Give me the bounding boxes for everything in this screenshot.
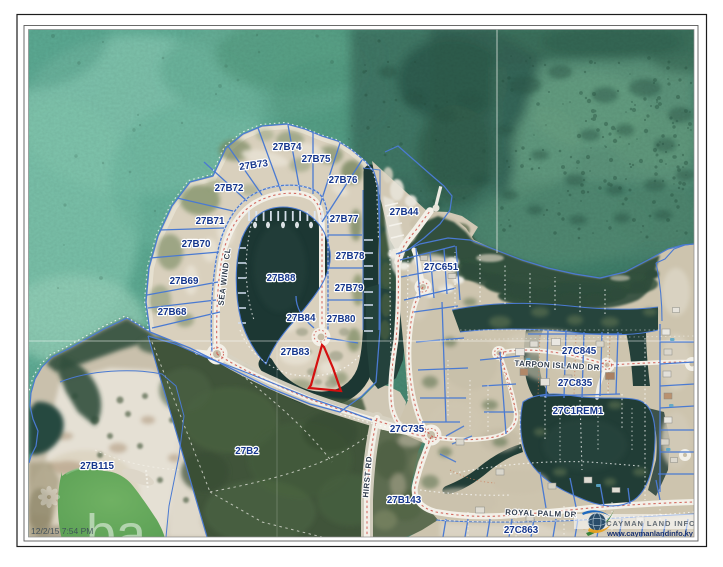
svg-text:27B75: 27B75 (302, 154, 331, 165)
svg-text:27C835: 27C835 (558, 378, 593, 389)
svg-text:27B88: 27B88 (267, 273, 296, 284)
svg-text:27B143: 27B143 (387, 495, 422, 506)
svg-text:12/2/15 7:54 PM: 12/2/15 7:54 PM (31, 526, 93, 536)
svg-text:27B2: 27B2 (235, 446, 259, 457)
svg-text:27B70: 27B70 (182, 239, 211, 250)
svg-text:27B69: 27B69 (170, 276, 199, 287)
svg-text:27B44: 27B44 (390, 207, 419, 218)
svg-text:27C845: 27C845 (562, 346, 597, 357)
svg-text:27B77: 27B77 (330, 214, 359, 225)
svg-text:27B68: 27B68 (158, 307, 187, 318)
svg-text:27B76: 27B76 (329, 175, 358, 186)
svg-text:27B71: 27B71 (196, 216, 225, 227)
svg-text:27C735: 27C735 (390, 424, 425, 435)
svg-text:27C1REM1: 27C1REM1 (553, 406, 604, 417)
svg-text:27B84: 27B84 (287, 313, 316, 324)
svg-text:27B115: 27B115 (80, 461, 114, 472)
svg-text:27B80: 27B80 (327, 314, 356, 325)
svg-text:27B79: 27B79 (335, 283, 364, 294)
svg-text:27B83: 27B83 (281, 347, 310, 358)
svg-text:27B78: 27B78 (336, 251, 365, 262)
svg-text:27C863: 27C863 (504, 525, 539, 536)
svg-text:ba: ba (86, 504, 147, 564)
svg-text:27B72: 27B72 (215, 183, 244, 194)
svg-text:27C651: 27C651 (424, 262, 459, 273)
svg-text:27B74: 27B74 (273, 142, 302, 153)
svg-text:CAYMAN LAND INFO: CAYMAN LAND INFO (606, 519, 696, 528)
